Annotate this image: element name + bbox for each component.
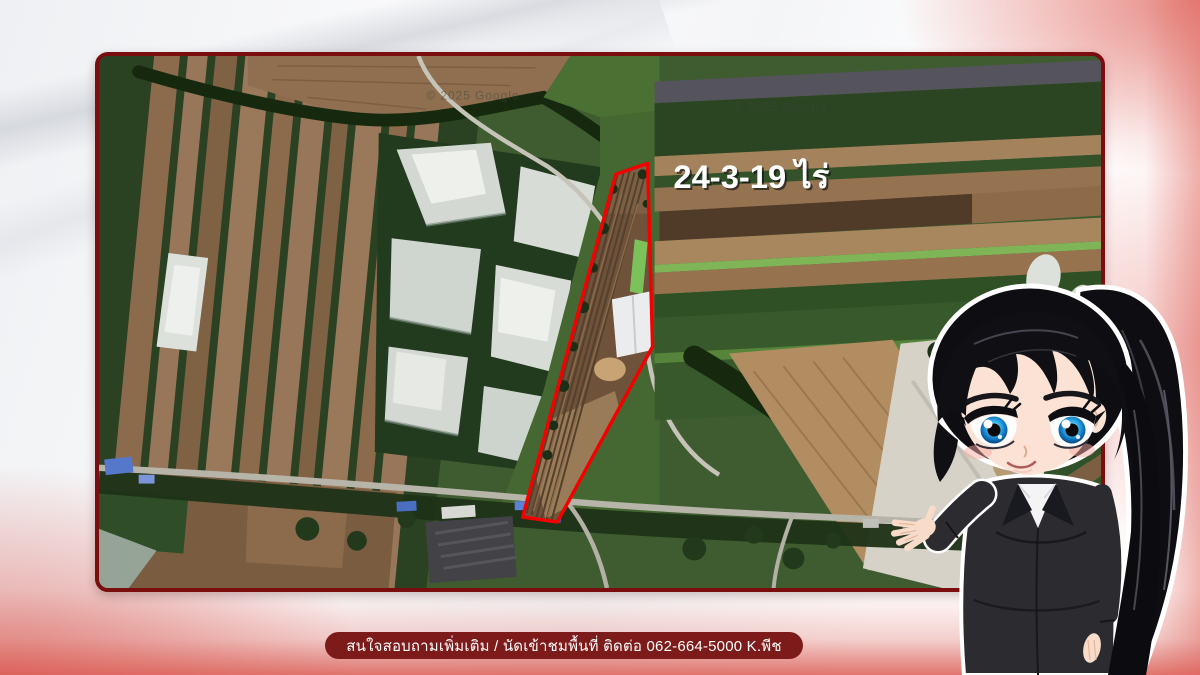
contact-bar: สนใจสอบถามเพิ่มเติม / นัดเข้าชมพื้นที่ ต… (325, 632, 803, 659)
blue-roof-building (104, 457, 133, 476)
google-watermark: © 2025 Google (426, 88, 519, 102)
land-area-label: 24-3-19 ไร่ (673, 158, 829, 195)
contact-text: สนใจสอบถามเพิ่มเติม / นัดเข้าชมพื้นที่ ต… (346, 634, 781, 658)
google-watermark: © 2025 Google (734, 100, 827, 114)
right-sleeve (1102, 494, 1111, 614)
presenter-character (878, 270, 1200, 675)
ad-canvas: © 2025 Google © 2025 Google 24-3-19 ไร่ … (0, 0, 1200, 675)
